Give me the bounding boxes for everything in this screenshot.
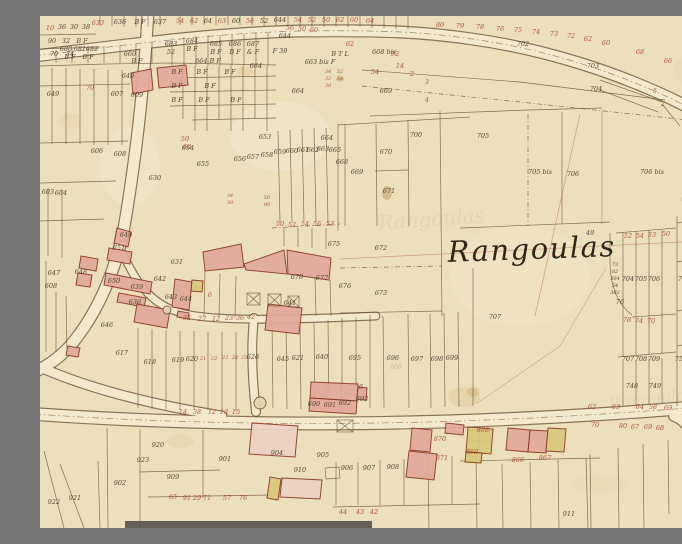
map-canvas: 103630389032B F7034633636B F637546264636… [40,16,682,528]
svg-text:650: 650 [108,277,120,285]
svg-text:676: 676 [339,282,351,290]
svg-text:664: 664 [321,134,333,142]
svg-text:50: 50 [662,230,670,238]
svg-text:57: 57 [223,494,232,502]
svg-text:643: 643 [165,293,177,301]
svg-text:705: 705 [477,132,489,140]
svg-text:687: 687 [247,40,260,48]
svg-text:644: 644 [274,16,286,24]
svg-text:870: 870 [434,435,446,443]
svg-text:36: 36 [58,23,66,31]
svg-text:608: 608 [114,150,126,158]
svg-text:646: 646 [101,321,113,329]
svg-text:62: 62 [336,16,344,24]
svg-text:682: 682 [86,45,98,53]
svg-text:664: 664 [292,87,304,95]
svg-text:707: 707 [489,313,502,321]
svg-text:921: 921 [69,494,81,502]
svg-text:32: 32 [62,37,70,45]
svg-text:644: 644 [180,295,192,303]
svg-text:50: 50 [298,25,306,33]
svg-text:618: 618 [144,358,156,366]
svg-text:56: 56 [286,24,294,32]
svg-text:639: 639 [131,283,143,291]
svg-text:908: 908 [387,463,399,471]
svg-text:90: 90 [264,202,271,208]
svg-text:42: 42 [369,508,378,516]
svg-text:76: 76 [616,298,624,306]
svg-text:23: 23 [224,314,233,322]
svg-text:70: 70 [591,421,599,429]
svg-text:15: 15 [232,408,240,416]
svg-text:4: 4 [424,96,429,104]
svg-text:699: 699 [446,354,458,362]
svg-text:12: 12 [212,315,220,323]
svg-text:2: 2 [409,70,414,78]
svg-text:677: 677 [316,274,329,282]
svg-text:90: 90 [48,37,56,45]
svg-text:707: 707 [622,355,635,363]
map-svg: 103630389032B F7034633636B F637546264636… [40,16,682,528]
svg-text:669: 669 [351,168,363,176]
svg-text:F 39: F 39 [272,47,288,55]
svg-text:5: 5 [653,87,657,95]
svg-text:B F: B F [170,68,183,76]
svg-text:304: 304 [610,276,620,282]
svg-text:80: 80 [619,422,627,430]
svg-text:672: 672 [375,244,387,252]
svg-text:68: 68 [656,424,664,432]
svg-text:608: 608 [45,282,57,290]
svg-text:44: 44 [338,508,347,516]
svg-text:626: 626 [247,353,259,361]
svg-text:54: 54 [294,16,302,24]
svg-text:21: 21 [199,356,206,362]
svg-text:70: 70 [647,317,655,325]
svg-text:645: 645 [277,355,289,363]
svg-text:B F: B F [223,68,236,76]
svg-text:B F: B F [75,37,88,45]
svg-text:53: 53 [326,220,334,228]
svg-text:56: 56 [246,17,254,25]
svg-text:64: 64 [366,17,374,25]
svg-text:14: 14 [396,62,404,70]
svg-text:680: 680 [60,45,72,53]
svg-text:38: 38 [193,408,201,416]
svg-text:B F: B F [185,45,198,53]
svg-text:50: 50 [181,135,189,143]
svg-text:644: 644 [279,32,291,40]
svg-text:66: 66 [664,57,672,65]
svg-text:52: 52 [260,17,268,25]
svg-text:648: 648 [75,268,87,276]
svg-text:62: 62 [584,35,592,43]
svg-text:32: 32 [325,76,331,82]
svg-text:78: 78 [476,23,484,31]
svg-text:658: 658 [261,151,273,159]
svg-text:703: 703 [587,62,599,70]
svg-text:691: 691 [324,401,336,409]
svg-text:50: 50 [264,195,271,201]
svg-text:664 B F: 664 B F [195,57,221,65]
svg-text:53: 53 [648,231,656,239]
svg-text:64: 64 [204,17,212,25]
svg-text:620: 620 [186,355,198,363]
cadastral-map[interactable]: Rangoulas 103630389032B F7034633636B F63… [40,16,682,528]
svg-text:72: 72 [567,32,575,40]
svg-text:649: 649 [122,72,134,80]
svg-text:696: 696 [387,354,399,362]
svg-text:603: 603 [42,188,54,196]
svg-text:690: 690 [308,400,320,408]
svg-text:751: 751 [675,355,682,363]
svg-text:63: 63 [218,17,226,25]
svg-text:B F: B F [81,53,94,61]
svg-text:54: 54 [176,17,184,25]
svg-text:52: 52 [337,69,343,75]
svg-text:3: 3 [425,78,429,86]
svg-text:904: 904 [271,449,283,457]
svg-text:23: 23 [221,355,228,361]
svg-text:663: 663 [317,145,329,153]
svg-text:6: 6 [208,291,212,299]
svg-text:609: 609 [131,91,143,99]
svg-text:647: 647 [48,269,61,277]
svg-text:702: 702 [517,40,529,48]
svg-text:54: 54 [337,76,343,82]
svg-text:74: 74 [635,317,643,325]
svg-text:684: 684 [186,37,198,45]
svg-text:Rangoulas: Rangoulas [446,229,616,269]
svg-text:B F: B F [130,57,143,65]
svg-text:75: 75 [514,26,522,34]
svg-text:660: 660 [390,364,402,371]
svg-text:606: 606 [91,147,103,155]
svg-text:705 bis: 705 bis [528,168,553,176]
svg-text:30: 30 [227,200,234,206]
svg-text:78: 78 [623,316,631,324]
svg-text:664: 664 [250,62,262,70]
svg-text:60: 60 [183,143,191,151]
svg-text:706 bis: 706 bis [640,168,665,176]
svg-text:52: 52 [308,16,316,24]
svg-text:697: 697 [411,355,424,363]
svg-text:60: 60 [350,16,358,24]
svg-text:604: 604 [55,189,67,197]
svg-text:50: 50 [276,220,284,228]
svg-text:669: 669 [380,87,392,95]
svg-text:698: 698 [431,355,443,363]
svg-text:62: 62 [346,40,354,48]
svg-text:54: 54 [612,283,618,289]
svg-text:52: 52 [391,50,399,58]
svg-text:43: 43 [355,508,364,516]
svg-text:13: 13 [220,408,228,416]
svg-text:B F: B F [228,48,241,56]
svg-text:34: 34 [227,193,233,199]
svg-text:30: 30 [325,83,332,89]
svg-text:637: 637 [154,18,167,26]
svg-text:868: 868 [477,426,489,434]
svg-text:649: 649 [120,231,132,239]
svg-text:38: 38 [82,23,90,31]
svg-text:657: 657 [247,153,260,161]
svg-text:B F: B F [209,48,222,56]
svg-text:693: 693 [356,395,368,403]
svg-text:10: 10 [46,24,54,32]
svg-text:902: 902 [114,479,126,487]
svg-text:700: 700 [410,131,422,139]
svg-text:52: 52 [288,221,296,229]
svg-text:76: 76 [239,494,247,502]
svg-text:24: 24 [231,355,238,361]
svg-text:656: 656 [234,155,246,163]
svg-text:54: 54 [301,220,309,228]
svg-text:659: 659 [274,148,286,156]
svg-text:82: 82 [612,269,618,275]
svg-text:665: 665 [329,146,341,154]
svg-text:901: 901 [219,455,231,463]
svg-text:79: 79 [456,22,464,30]
svg-text:649: 649 [47,90,59,98]
svg-text:73: 73 [550,30,558,38]
svg-text:630: 630 [149,174,161,182]
svg-text:56: 56 [313,220,321,228]
svg-text:& F: & F [247,48,260,56]
svg-text:12: 12 [208,408,216,416]
svg-text:668: 668 [336,158,348,166]
svg-text:686: 686 [229,40,241,48]
svg-text:50: 50 [322,16,330,24]
svg-text:34: 34 [325,69,331,75]
svg-text:42: 42 [246,313,255,321]
svg-text:636: 636 [114,18,126,26]
svg-text:91: 91 [183,494,191,502]
svg-text:685: 685 [210,40,222,48]
scan-edge-layer [125,521,372,528]
svg-text:52: 52 [167,48,175,56]
svg-text:60: 60 [310,26,318,34]
svg-text:681: 681 [74,45,86,53]
svg-text:748: 748 [626,382,638,390]
svg-text:6: 6 [359,383,363,391]
svg-text:25: 25 [240,355,247,361]
svg-text:636: 636 [129,298,141,306]
svg-text:706: 706 [648,275,660,283]
svg-text:52: 52 [624,232,632,240]
svg-text:34: 34 [183,314,191,322]
svg-text:B F: B F [133,18,146,26]
svg-text:642: 642 [154,275,166,283]
svg-text:910: 910 [294,466,306,474]
svg-text:29: 29 [192,494,201,502]
svg-text:909: 909 [167,473,179,481]
svg-text:62: 62 [190,17,198,25]
svg-text:906: 906 [341,464,353,472]
svg-text:651: 651 [113,244,125,252]
svg-text:60: 60 [602,39,610,47]
svg-text:621: 621 [292,354,304,362]
svg-text:60: 60 [232,17,240,25]
svg-text:65: 65 [169,493,177,501]
svg-text:68: 68 [636,48,644,56]
svg-text:633: 633 [92,19,104,27]
svg-text:76: 76 [496,25,504,33]
svg-text:36: 36 [236,314,244,322]
svg-text:640: 640 [316,353,328,361]
svg-text:869: 869 [466,448,478,456]
svg-text:B F: B F [63,53,76,61]
svg-text:709: 709 [648,355,660,363]
svg-text:671: 671 [383,187,395,195]
svg-text:920: 920 [152,441,164,449]
svg-text:705: 705 [635,275,647,283]
svg-text:22: 22 [210,356,217,362]
svg-text:867: 867 [539,454,552,462]
svg-text:683: 683 [165,40,177,48]
svg-text:70: 70 [86,84,94,92]
svg-text:675: 675 [328,240,340,248]
svg-text:71: 71 [203,494,211,502]
svg-text:2: 2 [660,100,665,108]
svg-text:663 bis F: 663 bis F [305,58,336,66]
svg-text:641: 641 [284,299,296,307]
svg-text:617: 617 [116,349,129,357]
svg-text:907: 907 [363,464,376,472]
svg-text:631: 631 [171,258,183,266]
svg-text:695: 695 [349,354,361,362]
svg-text:B F: B F [229,96,242,104]
svg-text:923: 923 [137,456,149,464]
svg-text:866: 866 [512,456,524,464]
svg-text:62: 62 [588,403,596,411]
svg-text:756: 756 [678,275,682,283]
svg-text:670: 670 [380,148,392,156]
svg-text:607: 607 [111,90,124,98]
svg-text:B F: B F [203,82,216,90]
svg-text:54: 54 [636,232,644,240]
svg-text:708: 708 [635,355,647,363]
svg-text:B F: B F [170,96,183,104]
svg-text:302: 302 [610,290,620,296]
svg-text:27: 27 [197,315,207,323]
svg-text:692: 692 [339,399,351,407]
svg-text:704: 704 [590,85,602,93]
svg-text:B T L: B T L [330,50,349,58]
svg-text:30: 30 [70,23,78,31]
svg-text:67: 67 [631,423,640,431]
svg-text:706: 706 [567,170,579,178]
svg-text:80: 80 [436,21,444,29]
svg-text:653: 653 [259,133,271,141]
svg-text:74: 74 [532,28,540,36]
svg-text:655: 655 [197,160,209,168]
svg-text:922: 922 [48,498,60,506]
svg-text:14: 14 [179,408,187,416]
svg-text:54: 54 [371,68,379,76]
svg-text:70: 70 [50,50,58,58]
svg-text:B F: B F [170,82,183,90]
svg-text:B F: B F [197,96,210,104]
svg-text:871: 871 [436,454,448,462]
svg-text:B F: B F [195,68,208,76]
svg-text:704: 704 [622,275,634,283]
svg-text:678: 678 [291,273,303,281]
svg-text:673: 673 [375,289,387,297]
svg-text:911: 911 [563,510,575,518]
svg-text:69: 69 [644,423,652,431]
svg-text:905: 905 [317,451,329,459]
svg-text:619: 619 [172,356,184,364]
